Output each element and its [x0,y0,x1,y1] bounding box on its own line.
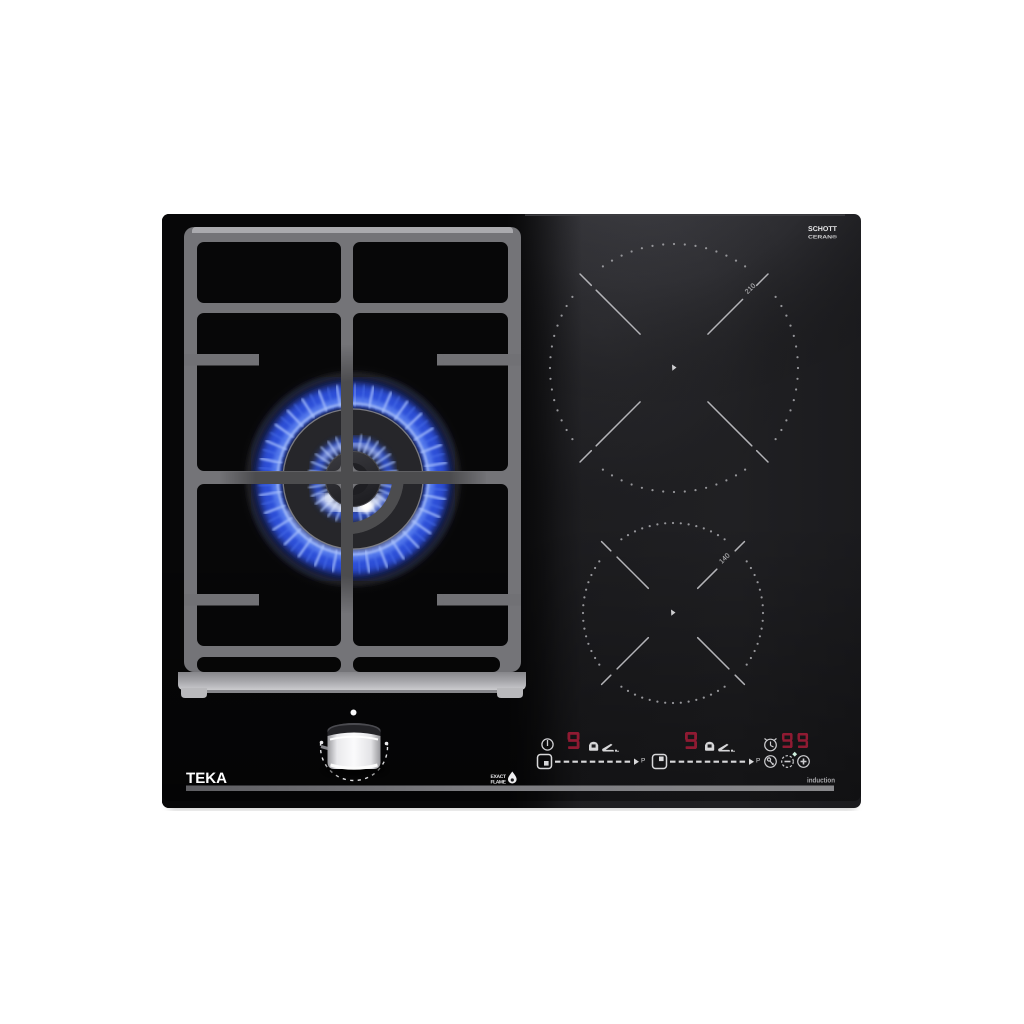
svg-text:induction: induction [807,776,835,785]
svg-text:P: P [756,758,760,765]
svg-text:TEKA: TEKA [186,770,227,787]
svg-text:P: P [641,758,645,765]
svg-text:FLAME: FLAME [491,780,507,786]
svg-text:SCHOTT: SCHOTT [808,226,838,233]
svg-text:CERAN®: CERAN® [808,235,837,241]
